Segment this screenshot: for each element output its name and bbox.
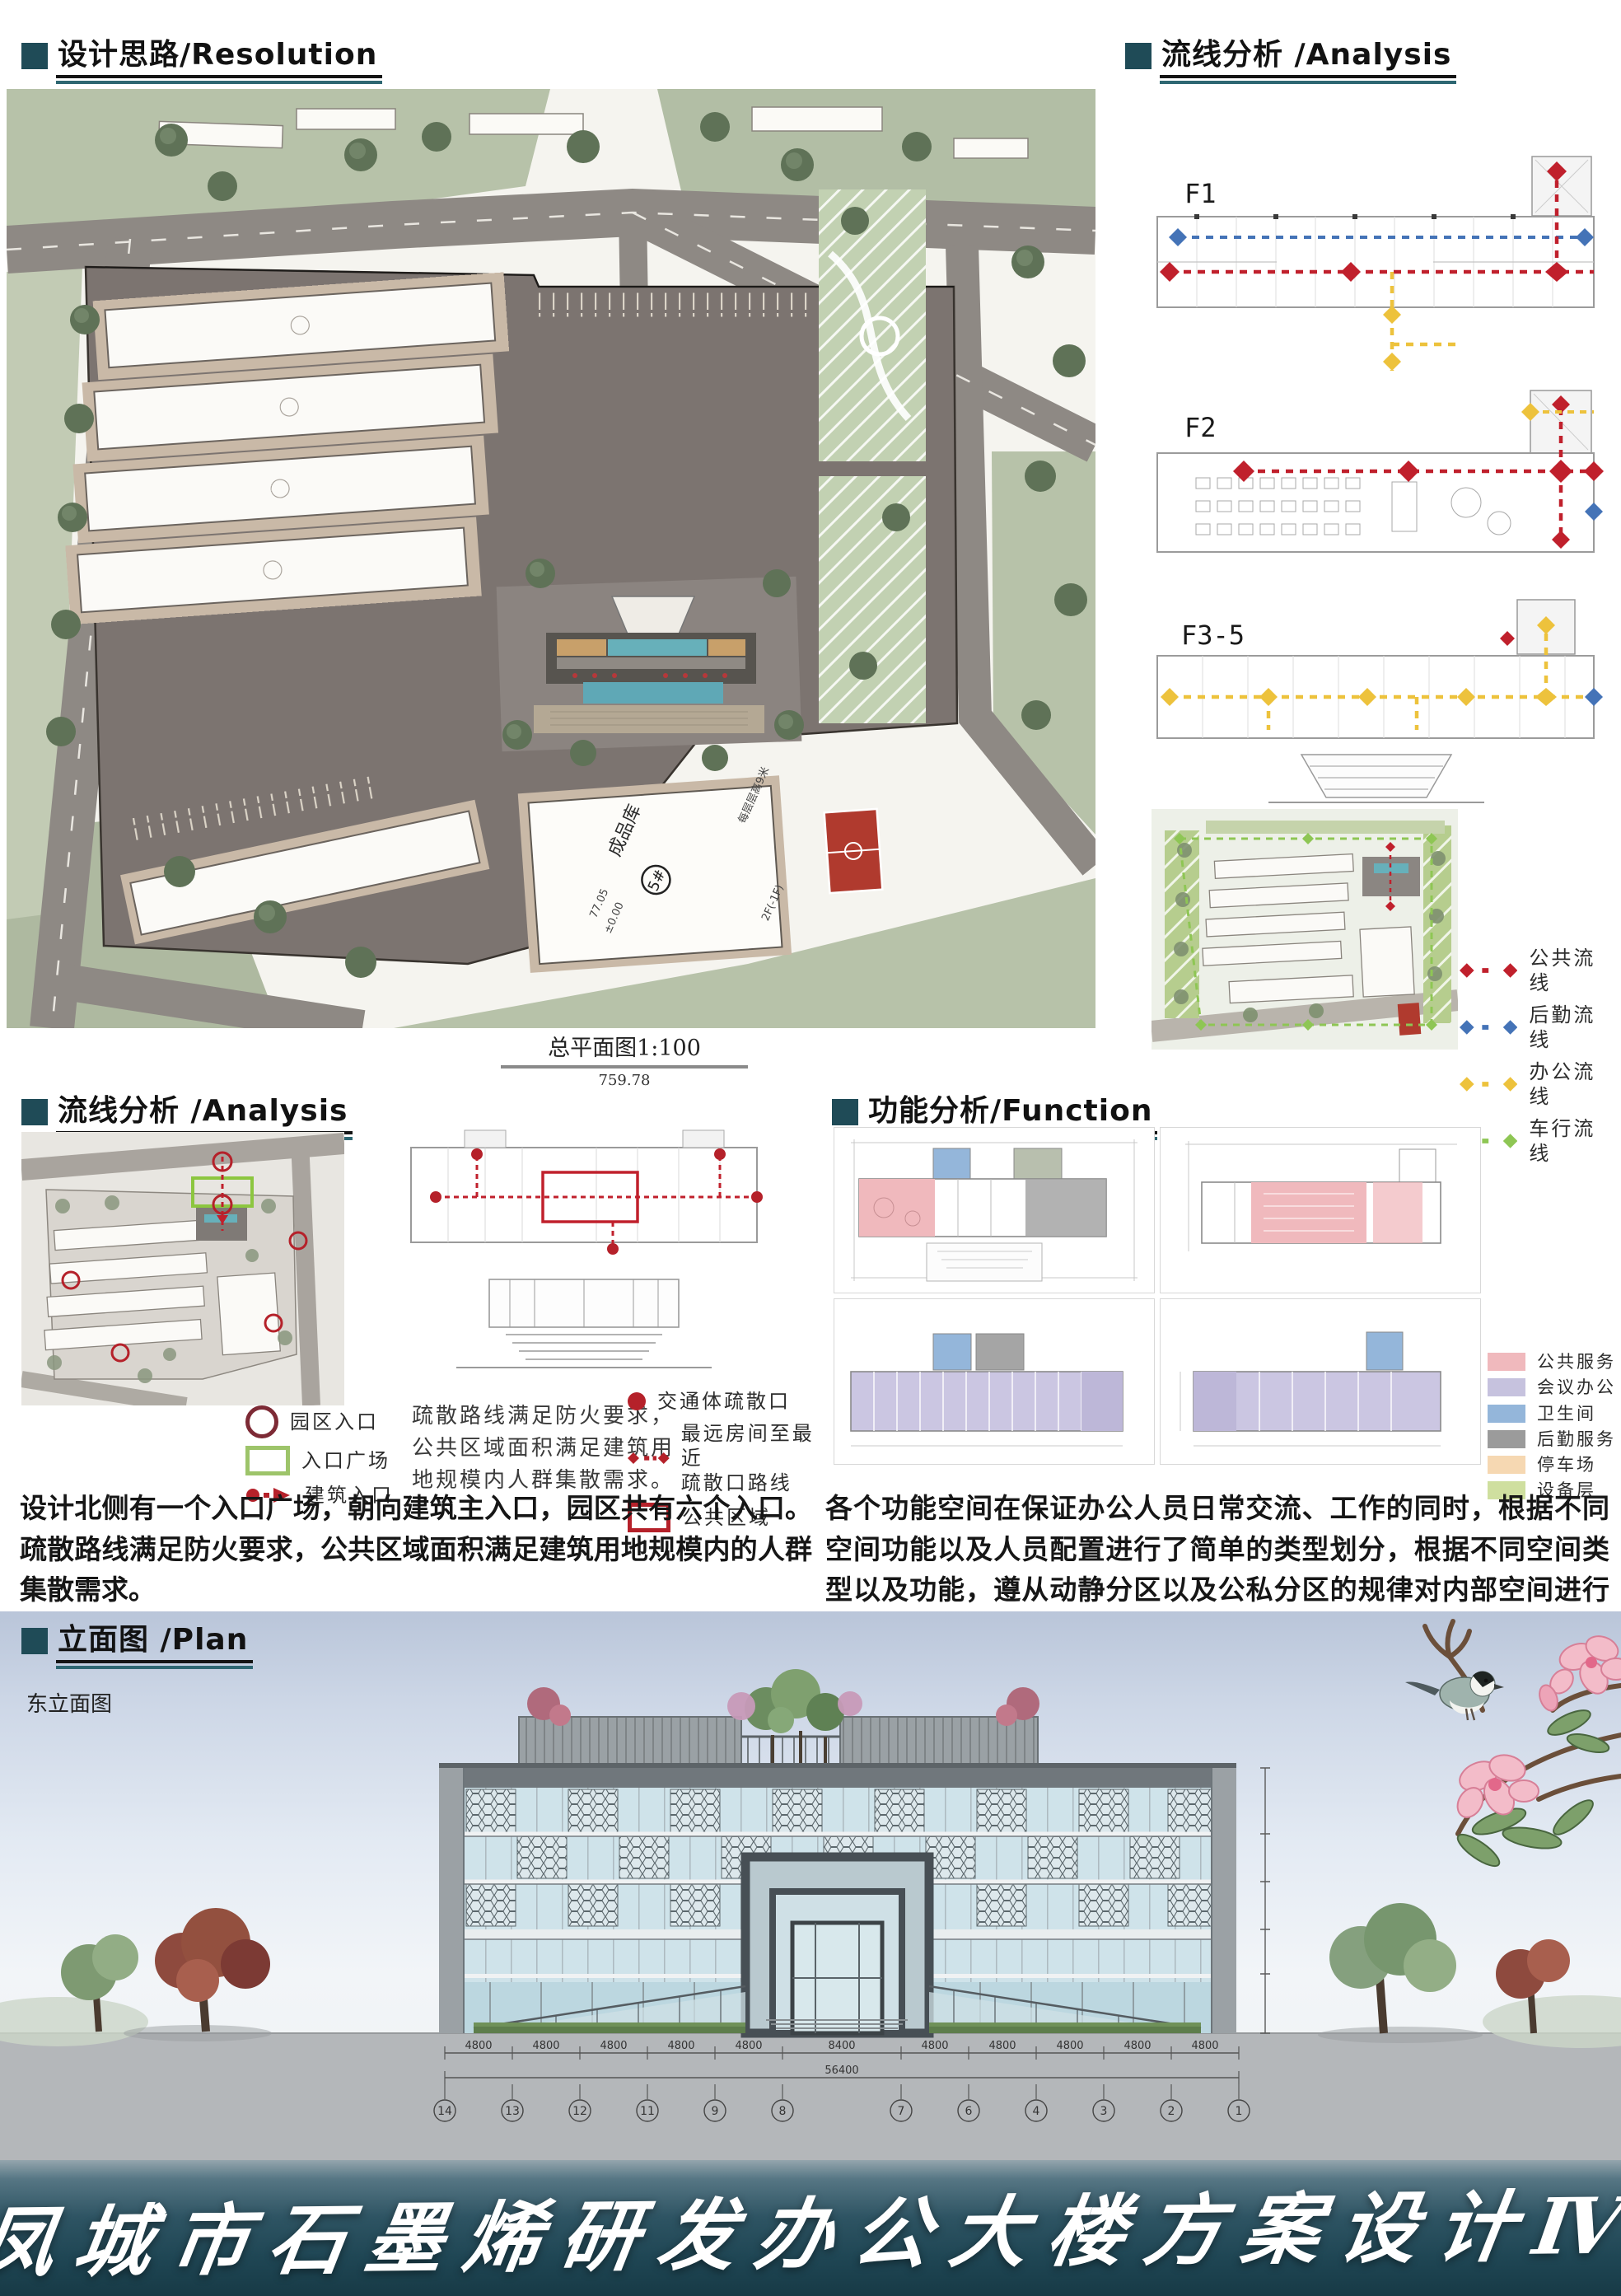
legend-row: 入口广场 — [245, 1446, 418, 1475]
logistics-swatch — [1488, 1430, 1525, 1448]
flow-paragraph: 设计北侧有一个入口广场，朝向建筑主入口，园区共有六个入口。疏散路线满足防火要求，… — [20, 1488, 812, 1611]
f35-label: F3-5 — [1181, 620, 1245, 651]
project-title-calligraphy: 凤城市石墨烯研发办公大楼方案设计Ⅳ — [0, 2163, 1621, 2293]
circulation-site-thumbnail — [1152, 809, 1458, 1050]
svg-text:1: 1 — [1236, 2105, 1243, 2118]
header-square-icon — [21, 1099, 48, 1125]
evac-route-icon — [628, 1452, 670, 1465]
caption-dim: 759.78 — [501, 1072, 748, 1089]
header-square-icon — [21, 43, 48, 69]
legend-row: 最远房间至最近 疏散口路线 — [628, 1421, 817, 1495]
public-service-swatch — [1488, 1353, 1525, 1371]
circulation-legend: 公共流线 后勤流线 办公流线 车行流线 — [1460, 946, 1616, 1173]
function-plan-f45 — [1160, 1298, 1481, 1465]
svg-text:13: 13 — [505, 2105, 520, 2118]
section-title: 流线分析 /Analysis — [56, 1096, 353, 1134]
bird-flower-painting — [1400, 1611, 1621, 1966]
flowers — [1452, 1632, 1621, 1821]
svg-text:4800: 4800 — [735, 2040, 762, 2052]
entrance-plaza-icon — [245, 1446, 290, 1475]
svg-text:7: 7 — [898, 2105, 905, 2118]
building-body — [439, 1763, 1236, 2033]
master-site-plan: 成品库 5# 77.05 ±0.00 每层层高9米 2F(-1F) — [7, 89, 1095, 1028]
section-header-resolution: 设计思路/Resolution — [21, 40, 382, 84]
footer-title-strip: 凤城市石墨烯研发办公大楼方案设计Ⅳ — [0, 2160, 1621, 2296]
main-building-plan — [497, 577, 802, 752]
section-title: 设计思路/Resolution — [56, 40, 382, 78]
park-entrance-icon — [245, 1405, 278, 1438]
svg-text:4800: 4800 — [532, 2040, 559, 2052]
legend-row: 后勤流线 — [1460, 1003, 1616, 1052]
svg-text:9: 9 — [712, 2105, 719, 2118]
function-plan-grid — [834, 1127, 1479, 1465]
legend-row: 后勤服务 — [1488, 1429, 1619, 1450]
evac-exit-icon — [628, 1392, 646, 1410]
svg-text:8: 8 — [779, 2105, 787, 2118]
east-elevation-label: 东立面图 — [26, 1687, 112, 1718]
bird-icon — [1405, 1672, 1504, 1720]
washroom-swatch — [1488, 1405, 1525, 1423]
svg-text:4800: 4800 — [921, 2040, 948, 2052]
vertical-dimension-line — [1260, 1768, 1270, 2033]
function-plan-f1 — [834, 1127, 1155, 1293]
svg-text:11: 11 — [640, 2105, 655, 2118]
circulation-plan-f1: F1 — [1145, 138, 1608, 376]
evacuation-plan — [366, 1127, 801, 1397]
legend-row: 公共服务 — [1488, 1351, 1619, 1372]
legend-row: 停车场 — [1488, 1454, 1619, 1475]
section-title: 立面图 /Plan — [56, 1625, 253, 1663]
legend-row: 公共流线 — [1460, 946, 1616, 995]
parking-swatch — [1488, 1456, 1525, 1474]
flow-line-logistics-icon — [1460, 1020, 1517, 1035]
f1-label: F1 — [1184, 178, 1217, 209]
flow-line-office-icon — [1460, 1077, 1517, 1092]
svg-text:4800: 4800 — [667, 2040, 694, 2052]
circulation-plan-f35: F3-5 — [1145, 590, 1608, 807]
section-header-plan: 立面图 /Plan — [21, 1625, 253, 1669]
header-square-icon — [21, 1628, 48, 1654]
function-plan-f2 — [1160, 1127, 1481, 1293]
legend-row: 办公流线 — [1460, 1059, 1616, 1109]
svg-text:4800: 4800 — [1123, 2040, 1151, 2052]
entrance-site-thumbnail — [21, 1132, 344, 1405]
flow-line-public-icon — [1460, 963, 1517, 978]
function-legend: 公共服务 会议办公 卫生间 后勤服务 停车场 设备层 — [1488, 1351, 1619, 1506]
svg-text:4800: 4800 — [600, 2040, 627, 2052]
legend-row: 卫生间 — [1488, 1403, 1619, 1424]
header-square-icon — [832, 1099, 858, 1125]
east-elevation-drawing: 4800 4800 4800 4800 4800 8400 4800 4800 … — [0, 1611, 1621, 2160]
header-square-icon — [1125, 43, 1152, 69]
svg-text:8400: 8400 — [828, 2040, 855, 2052]
svg-text:3: 3 — [1100, 2105, 1108, 2118]
svg-text:4: 4 — [1033, 2105, 1040, 2118]
legend-row: 车行流线 — [1460, 1116, 1616, 1166]
function-plan-f3 — [834, 1298, 1155, 1465]
svg-text:4800: 4800 — [465, 2040, 492, 2052]
basketball-court — [825, 809, 883, 893]
svg-text:6: 6 — [965, 2105, 973, 2118]
legend-row: 交通体疏散口 — [628, 1389, 817, 1414]
svg-text:12: 12 — [572, 2105, 587, 2118]
f2-label: F2 — [1184, 412, 1217, 443]
legend-row: 会议办公 — [1488, 1377, 1619, 1398]
caption-text: 总平面图1:100 — [501, 1030, 748, 1069]
section-header-analysis-top: 流线分析 /Analysis — [1125, 40, 1456, 84]
elevation-section: 4800 4800 4800 4800 4800 8400 4800 4800 … — [0, 1611, 1621, 2160]
svg-text:2: 2 — [1168, 2105, 1175, 2118]
section-title: 流线分析 /Analysis — [1160, 40, 1456, 78]
presentation-board: 设计思路/Resolution — [0, 0, 1621, 2296]
svg-text:4800: 4800 — [988, 2040, 1016, 2052]
svg-text:14: 14 — [437, 2105, 452, 2118]
svg-text:56400: 56400 — [825, 2065, 858, 2077]
master-plan-caption: 总平面图1:100 759.78 — [501, 1030, 748, 1089]
svg-text:4800: 4800 — [1056, 2040, 1083, 2052]
meeting-office-swatch — [1488, 1378, 1525, 1396]
legend-row: 园区入口 — [245, 1405, 418, 1438]
entrance-portal — [745, 1857, 929, 2033]
svg-text:4800: 4800 — [1191, 2040, 1218, 2052]
circulation-plan-f2: F2 — [1145, 379, 1608, 592]
